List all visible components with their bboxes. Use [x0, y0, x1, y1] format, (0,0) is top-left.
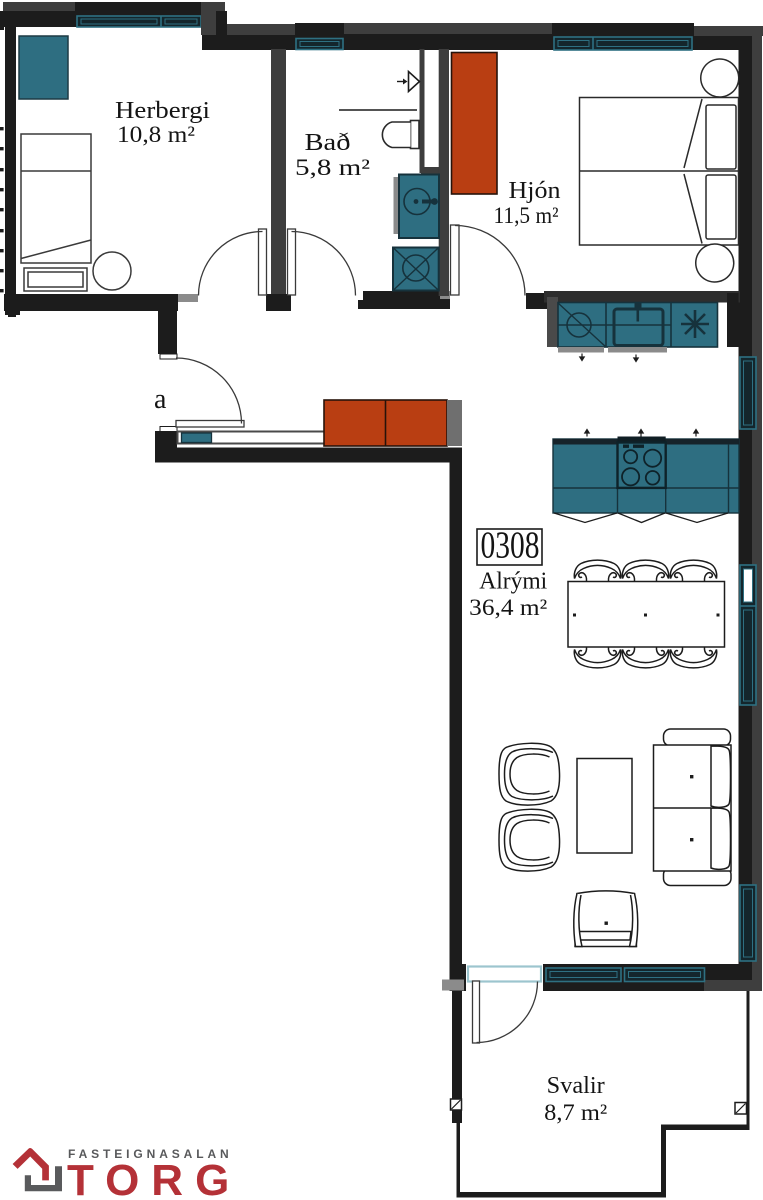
svg-text:0308: 0308 — [481, 525, 540, 567]
svg-text:Bað: Bað — [305, 130, 351, 156]
svg-text:TORG: TORG — [67, 1156, 241, 1200]
svg-text:a: a — [154, 384, 167, 415]
svg-text:11,5 m²: 11,5 m² — [494, 203, 559, 228]
svg-text:Hjón: Hjón — [509, 178, 561, 204]
svg-text:36,4 m²: 36,4 m² — [469, 595, 547, 620]
svg-text:10,8 m²: 10,8 m² — [117, 122, 195, 147]
svg-text:5,8 m²: 5,8 m² — [295, 155, 370, 180]
svg-text:8,7 m²: 8,7 m² — [544, 1100, 607, 1125]
svg-text:Svalir: Svalir — [547, 1073, 605, 1099]
svg-text:Herbergi: Herbergi — [115, 98, 210, 124]
svg-text:Alrými: Alrými — [479, 569, 547, 595]
